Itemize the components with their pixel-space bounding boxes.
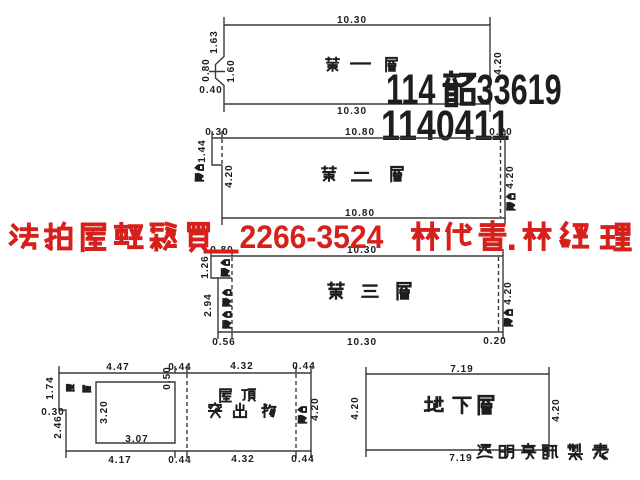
svg-text:2.94: 2.94 [203,293,214,316]
svg-text:0.44: 0.44 [291,454,314,465]
svg-text:1.74: 1.74 [45,376,56,399]
svg-text:4.32: 4.32 [231,454,254,465]
svg-text:4.20: 4.20 [350,396,361,419]
svg-text:0.44: 0.44 [168,455,191,466]
svg-text:0.56: 0.56 [212,337,235,348]
svg-text:1.26: 1.26 [200,255,211,278]
svg-text:10.30: 10.30 [347,337,377,348]
svg-text:0.50: 0.50 [162,366,173,389]
svg-text:4.47: 4.47 [106,362,129,373]
svg-text:0.44: 0.44 [292,361,315,372]
svg-text:7.19: 7.19 [449,453,472,464]
svg-text:1.44: 1.44 [197,139,208,162]
svg-text:4.20: 4.20 [503,281,514,304]
svg-text:3.20: 3.20 [99,400,110,423]
svg-text:4.17: 4.17 [108,455,131,466]
svg-text:0.40: 0.40 [199,85,222,96]
svg-text:2266-3524: 2266-3524 [240,219,385,255]
svg-text:4.20: 4.20 [551,398,562,421]
svg-text:10.30: 10.30 [337,106,367,117]
svg-text:3.07: 3.07 [125,434,148,445]
svg-text:0.20: 0.20 [483,336,506,347]
svg-text:7.19: 7.19 [450,364,473,375]
svg-text:0.80: 0.80 [201,58,212,81]
svg-text:4.20: 4.20 [310,397,321,420]
svg-text:10.30: 10.30 [337,15,367,26]
svg-text:0.20: 0.20 [489,127,512,138]
svg-text:4.32: 4.32 [230,361,253,372]
svg-text:1.63: 1.63 [209,30,220,53]
svg-text:1.60: 1.60 [226,59,237,82]
svg-text:4.20: 4.20 [224,164,235,187]
svg-text:10.80: 10.80 [345,127,375,138]
svg-text:0.30: 0.30 [205,127,228,138]
svg-text:10.80: 10.80 [345,208,375,219]
svg-text:2.46: 2.46 [53,415,64,438]
svg-text:4.20: 4.20 [505,165,516,188]
